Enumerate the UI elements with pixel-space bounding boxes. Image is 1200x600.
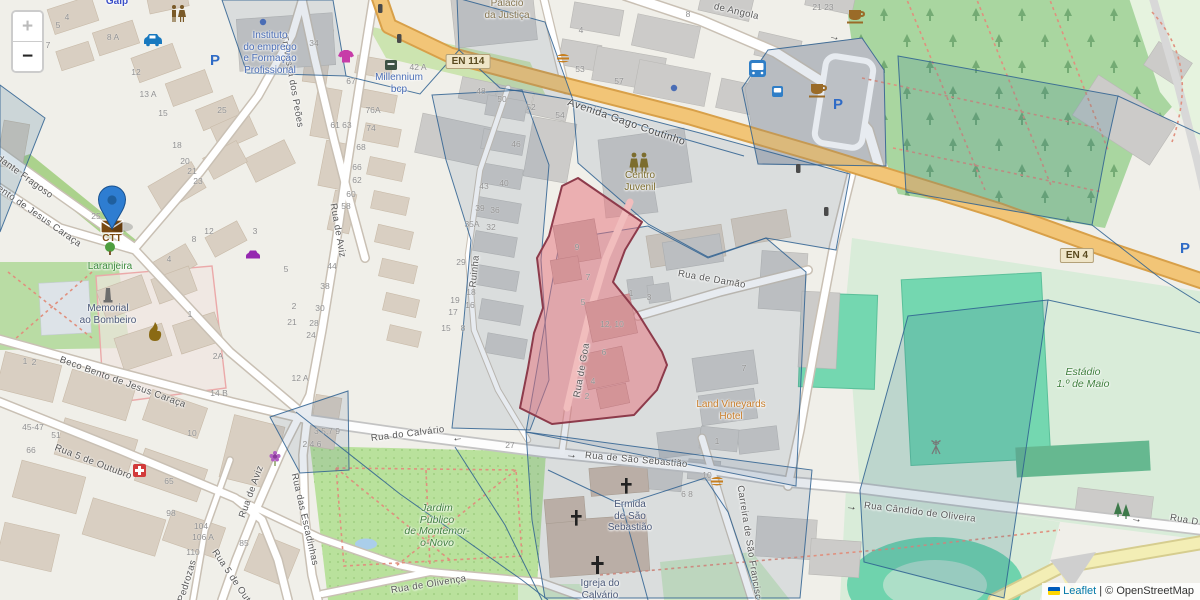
taxi-icon xyxy=(144,34,162,46)
zoom-in-button[interactable]: + xyxy=(13,12,42,42)
poi-dot-icon xyxy=(671,85,677,91)
pharmacy-icon xyxy=(133,464,146,477)
ukraine-flag-icon xyxy=(1048,587,1060,595)
marker-pin-dot xyxy=(107,195,116,204)
map-canvas[interactable]: Travessa dos PeõesRua de AvizRuinhaRua d… xyxy=(0,0,1200,600)
bus-station-icon xyxy=(749,60,766,77)
poi-dot-icon xyxy=(260,19,266,25)
attribution-separator: | xyxy=(1096,585,1105,597)
tree-icon xyxy=(105,242,115,255)
leaflet-link[interactable]: Leaflet xyxy=(1063,585,1096,597)
attribution-bar: Leaflet | © OpenStreetMap xyxy=(1042,583,1200,600)
map-tiles xyxy=(0,0,1200,600)
atm-icon xyxy=(385,60,397,70)
zoom-out-button[interactable]: − xyxy=(13,42,42,71)
car-repair-icon xyxy=(246,251,260,259)
osm-copyright[interactable]: © OpenStreetMap xyxy=(1105,585,1194,597)
zoom-control: + − xyxy=(11,10,44,73)
bus-stop-icon xyxy=(772,86,783,97)
